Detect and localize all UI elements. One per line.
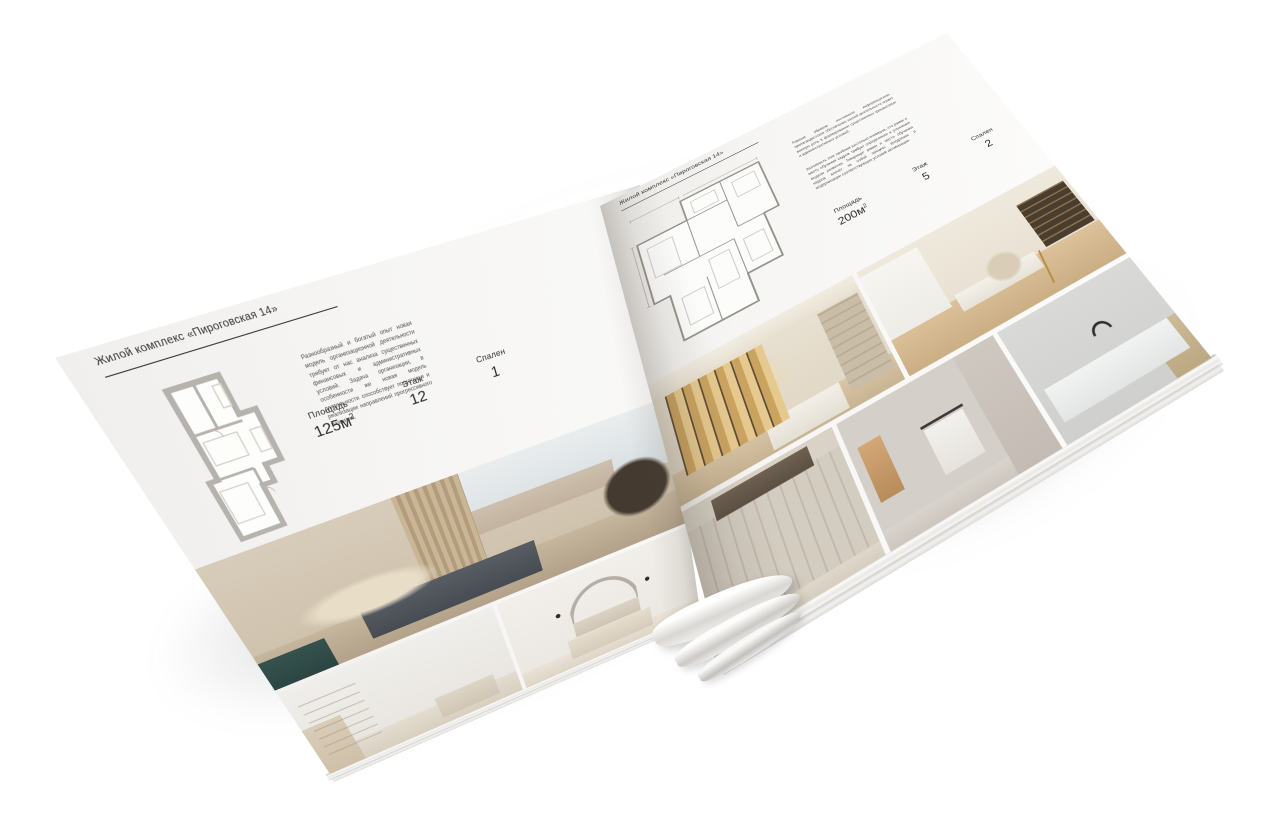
brochure-left-page: Жилой комплекс «Пироговская 14» Разнообр… <box>55 185 700 774</box>
page-header: Жилой комплекс «Пироговская 14» <box>92 303 280 369</box>
stat-bedrooms: Спален 1 <box>463 342 524 389</box>
photo-backdrop: Жилой комплекс «Пироговская 14» Разнообр… <box>0 0 1280 835</box>
floor-plan-125 <box>143 358 320 549</box>
stat-area: Площадь 125м2 <box>294 395 370 446</box>
stat-area: Площадь 200м2 <box>824 190 879 232</box>
left-page-wrap: Жилой комплекс «Пироговская 14» Разнообр… <box>55 185 700 774</box>
stat-floor: Этаж 5 <box>900 155 949 192</box>
stat-bedrooms: Спален 2 <box>961 122 1012 159</box>
